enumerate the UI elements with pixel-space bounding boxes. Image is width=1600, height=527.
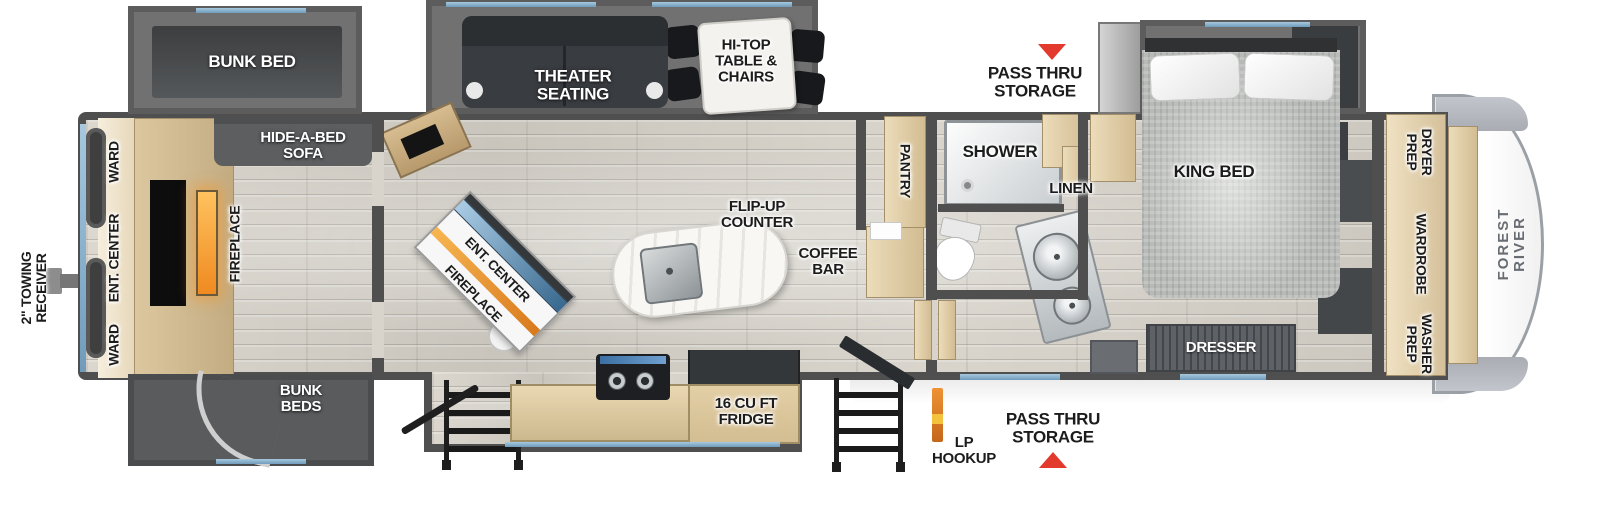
theater-slide-window-2 [652, 2, 792, 7]
dryer-prep-label: DRYER PREP [1404, 129, 1434, 176]
linen-label: LINEN [1049, 181, 1093, 197]
fridge-top [688, 350, 800, 384]
partition-doorway-bottom [372, 302, 384, 358]
pass-thru-arrow-up-icon [1039, 452, 1067, 468]
burner-left [608, 372, 626, 390]
coffee-bar-top [870, 222, 902, 240]
living-pantry-wall [856, 112, 866, 230]
brand-label: FOREST RIVER [1496, 200, 1528, 288]
rear-window-glass [80, 124, 86, 372]
hi-top-chair-1 [664, 24, 701, 59]
theater-cupholder-left [466, 82, 483, 99]
bunk-slide-window [196, 8, 306, 13]
theater-sofa-back [462, 16, 668, 46]
ward-top-label: WARD [106, 141, 121, 183]
bedroom-cabinet-left [1090, 114, 1136, 182]
rear-fireplace-glow [196, 190, 218, 296]
shower-drain [961, 179, 974, 192]
coffee-bar-label: COFFEE BAR [798, 246, 857, 278]
bedroom-step [1090, 340, 1138, 374]
theater-slide-window-1 [446, 2, 596, 7]
hide-a-bed-label: HIDE-A-BED SOFA [260, 130, 345, 162]
hi-top-label: HI-TOP TABLE & CHAIRS [715, 38, 777, 87]
hi-top-chair-2 [664, 66, 702, 102]
pass-thru-arrow-down-icon [1038, 44, 1066, 60]
hi-top-chair-3 [789, 29, 826, 64]
bath-door-panel-1 [914, 300, 932, 360]
flip-up-counter-label: FLIP-UP COUNTER [721, 199, 793, 231]
burner-right [636, 372, 654, 390]
bath-right-wall [1078, 112, 1088, 300]
entry-steps-bath [828, 376, 908, 472]
king-pillow-left [1149, 52, 1241, 101]
bottom-window-2 [1180, 374, 1266, 380]
pass-thru-compartment [1098, 22, 1142, 114]
bath-door-panel-2 [938, 300, 956, 360]
king-bed-label: KING BED [1174, 163, 1255, 181]
stove-vent [600, 356, 666, 364]
kitchen-window [505, 442, 780, 447]
rear-window-frame-top [86, 128, 106, 228]
rear-tv [150, 180, 186, 306]
lp-hookup-band [932, 414, 943, 424]
fridge-label: 16 CU FT FRIDGE [715, 396, 778, 428]
king-slide-window [1205, 22, 1310, 27]
rv-floorplan: FOREST RIVER 2" TOWING RECEIVER BUNK BED… [0, 0, 1600, 527]
theater-seating-label: THEATER SEATING [535, 68, 612, 105]
king-bed-headboard [1145, 38, 1337, 52]
king-pillow-right [1243, 52, 1335, 101]
partition-doorway-top [372, 152, 384, 206]
front-wardrobe-face [1448, 126, 1478, 364]
bunk-beds-label: BUNK BEDS [280, 383, 322, 415]
shower-label: SHOWER [963, 143, 1038, 161]
closet-wall [1372, 112, 1384, 380]
pass-thru-top-label: PASS THRU STORAGE [988, 65, 1082, 102]
washer-prep-label: WASHER PREP [1404, 314, 1434, 374]
stove [596, 354, 670, 400]
towing-receiver-label: 2" TOWING RECEIVER [19, 252, 49, 325]
theater-cupholder-right [646, 82, 663, 99]
dresser-label: DRESSER [1186, 340, 1256, 356]
corner-desk-top [401, 124, 445, 160]
rear-fireplace-label: FIREPLACE [227, 206, 242, 283]
wardrobe-label: WARDROBE [1413, 214, 1428, 295]
rear-window-frame-bottom [86, 258, 106, 358]
lp-hookup-label: LP HOOKUP [932, 435, 996, 467]
bunk-bed-label: BUNK BED [208, 53, 295, 71]
bunk-beds-window [216, 459, 306, 464]
ward-bottom-label: WARD [106, 324, 121, 366]
shower-bottom-wall [938, 204, 1064, 212]
bath-bottom-wall [926, 290, 1088, 299]
rear-ent-center-label: ENT. CENTER [106, 214, 121, 303]
pass-thru-bottom-label: PASS THRU STORAGE [1006, 411, 1100, 448]
bottom-window-1 [960, 374, 1060, 380]
pantry-label: PANTRY [897, 144, 912, 198]
